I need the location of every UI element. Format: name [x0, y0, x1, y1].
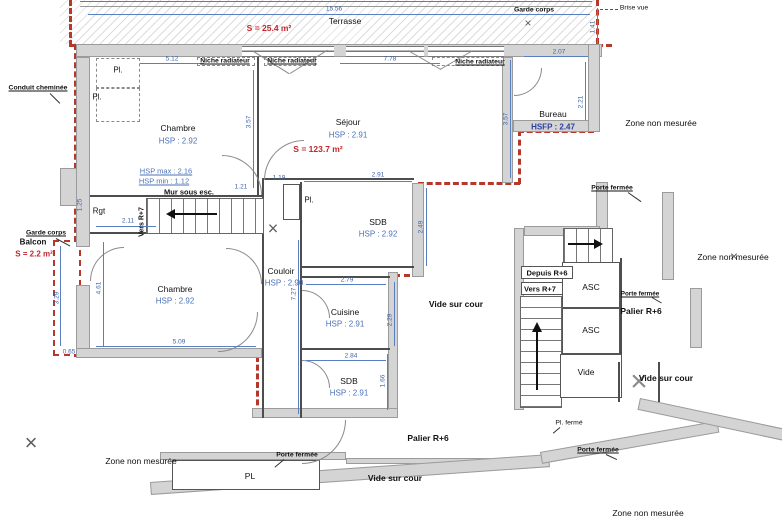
- label-zone-non-mesuree: Zone non mesurée: [612, 508, 683, 518]
- dim-line: [585, 62, 586, 120]
- leader-line: [628, 192, 642, 202]
- x-mark: ×: [25, 430, 38, 456]
- dim-line: [88, 14, 590, 15]
- dim-line: [298, 240, 299, 414]
- room-label-sdb2: SDB: [340, 376, 357, 386]
- sdb2-hsp: HSP : 2.91: [330, 389, 369, 398]
- cuisine-hsp: HSP : 2.91: [326, 320, 365, 329]
- balcon-area-label: S = 2.2 m²: [15, 250, 53, 259]
- stairs-arrow-left: [166, 209, 175, 219]
- label-zone-non-mesuree: Zone non mesurée: [625, 118, 696, 128]
- cuisine-right-wall: [388, 272, 398, 418]
- dim-line: [96, 226, 156, 227]
- annotation-niche-radiateur: Niche radiateur: [200, 58, 249, 65]
- label-palier-r6: Palier R+6: [620, 306, 661, 316]
- window: [428, 46, 504, 57]
- left-facade-wall: [76, 57, 90, 247]
- dim-rgt-depth: 1.25: [77, 199, 84, 212]
- room-label-terrasse: Terrasse: [329, 16, 362, 26]
- bureau-hsfp: HSFP : 2.47: [531, 123, 575, 132]
- brise-vue-dash: [600, 9, 618, 10]
- room-label-couloir: Couloir: [268, 266, 295, 276]
- dim-line: [597, 8, 598, 44]
- closet-label-pl-upper: PL: [245, 471, 255, 481]
- dim-line: [426, 188, 427, 266]
- terrasse-area-label: S = 25.4 m²: [247, 23, 292, 33]
- annotation-conduit-cheminee: Conduit cheminée: [9, 85, 68, 92]
- stairs-arrow-up: [532, 322, 542, 332]
- label-vide-sur-cour: Vide sur cour: [368, 473, 422, 483]
- dim-sejour-width: 7.78: [384, 56, 397, 63]
- leader-line: [606, 454, 617, 460]
- floor-plan-canvas: × × × × × Terrasse S = 25.4 m² Chambre H…: [0, 0, 782, 532]
- chambre2-bottom-wall: [76, 348, 262, 358]
- dim-chambre1-depth: 3.57: [246, 116, 253, 129]
- dim-line: [387, 354, 388, 410]
- closet-pl-middle: [283, 184, 300, 220]
- annotation-porte-fermee: Porte fermée: [621, 291, 660, 298]
- apartment-area-label: S = 123.7 m²: [293, 144, 342, 154]
- closet-label-pl: Pl.: [304, 196, 313, 205]
- red-boundary-segment: [69, 0, 72, 46]
- x-mark: ×: [524, 16, 531, 30]
- room-label-chambre2: Chambre: [158, 284, 193, 294]
- annotation-hsp-min: HSP min : 1.12: [139, 177, 189, 186]
- dim-line: [306, 360, 386, 361]
- dim-sdb1-depth: 2.49: [418, 221, 425, 234]
- dim-line: [510, 60, 511, 178]
- left-facade-wall-lower: [76, 285, 90, 355]
- door-arc: [302, 360, 330, 388]
- stairs-under-slope: [146, 198, 264, 234]
- dim-line: [304, 181, 412, 182]
- dim-balcon-length: 3.29: [54, 292, 61, 305]
- dim-couloir-length: 7.27: [291, 288, 298, 301]
- couloir-hsp: HSP : 2.90: [265, 279, 304, 288]
- room-label-balcon: Balcon: [20, 238, 47, 247]
- tag-vers-r7: Vers R+7: [524, 285, 556, 294]
- room-label-sdb1: SDB: [369, 217, 386, 227]
- label-vide-sur-cour: Vide sur cour: [429, 299, 483, 309]
- stairs-upper-flight: [563, 228, 613, 264]
- annotation-garde-corps: Garde corps: [26, 230, 66, 237]
- dim-sejour-depth: 3.57: [503, 113, 510, 126]
- dim-bureau-width: 2.07: [553, 49, 566, 56]
- dim-terrasse-depth: 1.41: [590, 21, 597, 34]
- sdb2-bottom-wall: [252, 408, 398, 418]
- dim-sdb2-depth: 1.66: [380, 375, 387, 388]
- annotation-mur-sous-esc: Mur sous esc.: [164, 188, 214, 197]
- sejour-hsp: HSP : 2.91: [329, 131, 368, 140]
- bureau-right-wall: [588, 44, 600, 132]
- tag-vers-r7-stairs: Vers R+7: [139, 207, 146, 237]
- diagonal-wall-bottom-right: [540, 421, 719, 464]
- leader-line: [652, 297, 662, 303]
- closet-label-pl: Pl.: [113, 66, 122, 75]
- dim-line: [253, 70, 254, 188]
- room-label-rgt: Rgt: [93, 207, 105, 216]
- door-arc: [302, 290, 330, 318]
- chambre2-hsp: HSP : 2.92: [156, 297, 195, 306]
- dim-chambre2-depth: 4.61: [96, 282, 103, 295]
- dim-cuisine-depth: 2.29: [387, 314, 394, 327]
- dim-line: [103, 242, 104, 346]
- door-arc: [90, 247, 124, 281]
- palier-right-wall: [662, 192, 674, 280]
- red-boundary-segment: [256, 356, 259, 414]
- stairs-arrow-tail: [536, 332, 538, 390]
- dim-line: [140, 63, 204, 64]
- dim-line: [96, 346, 256, 347]
- leader-line: [50, 93, 61, 104]
- annotation-hsp-max: HSP max : 2.16: [140, 167, 192, 176]
- dim-line: [340, 63, 440, 64]
- annotation-porte-fermee: Porte fermée: [276, 452, 318, 459]
- dim-rgt-width: 2.11: [122, 218, 134, 225]
- cuisine-bottom-wall: [300, 348, 390, 350]
- dim-sdb2-width: 2.84: [345, 353, 358, 360]
- dim-terrasse-length: 15.56: [326, 6, 342, 13]
- dim-passage1: 1.21: [235, 184, 248, 191]
- annotation-brise-vue: Brise vue: [620, 5, 648, 12]
- label-zone-non-mesuree: Zone non mesurée: [697, 252, 768, 262]
- dim-chambre1-width: 5.12: [166, 56, 179, 63]
- palier-right-wall-lower: [690, 288, 702, 348]
- tag-depuis-r6: Depuis R+6: [526, 269, 567, 278]
- annotation-garde-corps: Garde corps: [514, 7, 554, 14]
- chimney-flue-bump: [60, 168, 77, 206]
- sdb1-hsp: HSP : 2.92: [359, 230, 398, 239]
- annotation-pl-ferme: Pl. fermé: [555, 420, 582, 427]
- label-asc: ASC: [582, 325, 599, 335]
- dim-line: [524, 56, 588, 57]
- annotation-niche-radiateur: Niche radiateur: [455, 59, 504, 66]
- sdb1-bottom-wall: [300, 266, 414, 268]
- dim-line: [394, 282, 395, 346]
- annotation-niche-radiateur: Niche radiateur: [267, 58, 316, 65]
- label-palier-r6: Palier R+6: [407, 433, 448, 443]
- dim-chambre2-width: 5.09: [173, 339, 186, 346]
- dim-cuisine-width: 2.79: [341, 277, 354, 284]
- stairs-arrow-tail: [568, 243, 594, 245]
- dim-line: [306, 284, 386, 285]
- room-label-cuisine: Cuisine: [331, 307, 359, 317]
- label-vide-sur-cour: Vide sur cour: [639, 373, 693, 383]
- red-boundary-segment: [518, 130, 521, 184]
- x-mark: ×: [268, 219, 279, 240]
- annotation-porte-fermee: Porte fermée: [577, 447, 619, 454]
- label-zone-non-mesuree: Zone non mesurée: [105, 456, 176, 466]
- room-label-bureau: Bureau: [539, 109, 566, 119]
- stairs-arrow-tail: [175, 213, 217, 215]
- dim-passage2: 1.19: [273, 175, 286, 182]
- stairs-arrow-right: [594, 239, 603, 249]
- dim-sdb1-width: 2.91: [372, 172, 385, 179]
- dim-bureau-depth: 2.21: [578, 96, 585, 109]
- label-asc: ASC: [582, 282, 599, 292]
- chambre1-hsp: HSP : 2.92: [159, 137, 198, 146]
- stairs-main-flight: [520, 296, 562, 408]
- room-label-chambre1: Chambre: [161, 123, 196, 133]
- room-label-sejour: Séjour: [336, 117, 361, 127]
- label-vide: Vide: [578, 367, 595, 377]
- door-arc: [514, 68, 542, 96]
- door-arc: [226, 248, 262, 284]
- closet-pl: [96, 88, 140, 122]
- leader-line: [553, 427, 561, 434]
- closet-label-pl: Pl.: [92, 93, 101, 102]
- annotation-porte-fermee: Porte fermée: [591, 185, 633, 192]
- double-door-jamb: [618, 362, 620, 402]
- dim-balcon-width: 0.65: [63, 349, 76, 356]
